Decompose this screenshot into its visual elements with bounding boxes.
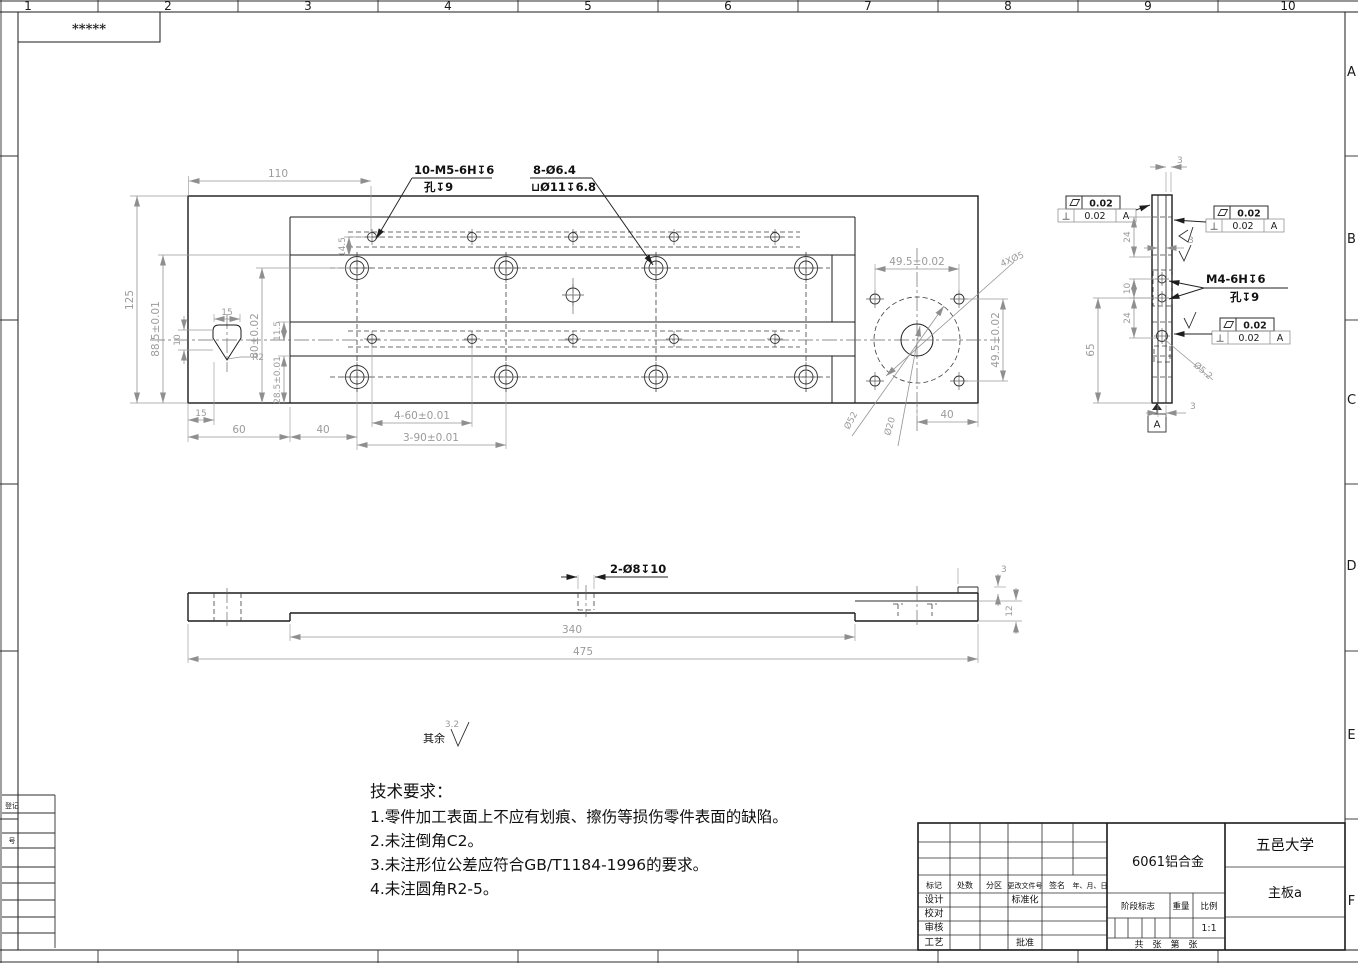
dim-110: 110 (268, 168, 288, 180)
fcf-perp-value: 0.02 (1232, 221, 1253, 232)
side-view-dimensions: 3 24 10 24 65 3 3 (1085, 156, 1196, 417)
dowel-callout: 2-Ø8↧10 (561, 562, 668, 589)
dim-65: 65 (1085, 343, 1097, 356)
rev-col-zone: 分区 (986, 881, 1002, 890)
m5-hole-row-bottom (364, 331, 783, 347)
datum-a-label: A (1154, 420, 1161, 431)
perpendicularity-icon: ⊥ (1216, 334, 1225, 345)
datum-a: A (1148, 403, 1166, 432)
cell-standardization: 标准化 (1011, 894, 1038, 906)
fcf-datum-ref: A (1277, 333, 1284, 344)
row-label: D (1346, 559, 1356, 574)
row-label: A (1347, 65, 1356, 80)
scale-label: 比例 (1200, 901, 1217, 912)
organization: 五邑大学 (1256, 837, 1314, 854)
row-process: 工艺 (924, 938, 943, 949)
dim-125: 125 (124, 290, 136, 310)
col-label: 2 (164, 0, 172, 13)
tech-req-item: 2.未注倒角C2。 (370, 832, 483, 850)
grid-row-letters: A B C D E F (1346, 65, 1356, 909)
top-view-dimensions: 110 125 88.5±0.01 80±0.02 11.5 28.5±0.01… (124, 168, 1026, 450)
label-4x5: 4XØ5 (999, 250, 1026, 270)
dim-24a: 24 (1123, 231, 1133, 243)
flatness-icon (1224, 322, 1234, 328)
col-label: 3 (304, 0, 312, 13)
top-view: 110 125 88.5±0.01 80±0.02 11.5 28.5±0.01… (124, 163, 1026, 450)
margin-label: 号 (9, 837, 16, 845)
dim-49-5-v: 49.5±0.02 (990, 312, 1002, 368)
tech-req-item: 3.未注形位公差应符合GB/T1184-1996的要求。 (370, 855, 708, 874)
material-scale-block: 6061铝合金 阶段标志 重量 比例 1:1 共 张 第 张 (1107, 854, 1225, 951)
finish-prefix: 其余 (423, 731, 445, 745)
dim-15-pentagon: 15 (221, 308, 232, 318)
part-name: 主板a (1268, 886, 1302, 901)
col-label: 7 (864, 0, 872, 13)
dim-3-step: 3 (1001, 565, 1007, 575)
dim-3-top: 3 (1177, 156, 1183, 166)
dim-80: 80±0.02 (249, 313, 261, 359)
weight-label: 重量 (1172, 901, 1190, 912)
col-label: 4 (444, 0, 452, 13)
dim-49-5-h: 49.5±0.02 (889, 256, 945, 268)
roughness-icon (1184, 312, 1196, 328)
dim-10: 10 (173, 334, 183, 346)
flatness-icon (1218, 210, 1228, 216)
fcf-top-right: 0.02 ⊥ 0.02 A (1174, 206, 1284, 233)
stage-mark-label: 阶段标志 (1121, 901, 1156, 912)
dim-4x60: 4-60±0.01 (394, 410, 450, 422)
left-margin-blocks: 登记 号 (2, 795, 55, 948)
col-label: 1 (24, 0, 32, 13)
row-design: 设计 (924, 894, 944, 906)
bottom-view-dimensions: 340 475 3 12 (188, 565, 1022, 663)
dim-10-side: 10 (1123, 283, 1133, 295)
fcf-perp-value: 0.02 (1084, 211, 1105, 222)
grid-column-numbers: 1 2 3 4 5 6 7 8 9 10 (24, 0, 1295, 13)
rev-col-sign: 签名 (1049, 880, 1065, 890)
callout-m5-sub: 孔↧9 (424, 180, 453, 194)
org-part-block: 五邑大学 主板a (1225, 837, 1345, 917)
fcf-top-left: 0.02 ⊥ 0.02 A (1058, 196, 1150, 223)
dim-88-5: 88.5±0.01 (150, 301, 162, 357)
technical-requirements: 技术要求： 1.零件加工表面上不应有划痕、擦伤等损伤零件表面的缺陷。 2.未注倒… (370, 782, 788, 898)
finish-ra-value: 3.2 (445, 720, 459, 730)
rev-col-docno: 更改文件号 (1008, 881, 1043, 890)
perpendicularity-icon: ⊥ (1210, 222, 1219, 233)
col-label: 6 (724, 0, 732, 13)
callout-m4: M4-6H↧6 (1206, 272, 1265, 286)
bottom-view: 2-Ø8↧10 340 475 3 12 (188, 562, 1022, 663)
stars-box: ***** (18, 12, 160, 42)
dim-24b: 24 (1123, 312, 1133, 324)
rev-col-mark: 标记 (926, 880, 942, 890)
callout-m5: 10-M5-6H↧6 (414, 163, 494, 177)
callout-cbore: 8-Ø6.4 (533, 163, 576, 177)
col-label: 8 (1004, 0, 1012, 13)
surface-finish-note: 其余 3.2 (423, 720, 469, 746)
row-label: E (1347, 728, 1355, 743)
fcf-flatness-value: 0.02 (1089, 199, 1112, 210)
callout-cbore-sub: ⊔Ø11↧6.8 (531, 180, 596, 194)
margin-label: 登记 (5, 801, 19, 810)
row-label: B (1347, 232, 1356, 247)
fcf-datum-ref: A (1123, 211, 1130, 222)
sheet-count: 共 张 第 张 (1134, 939, 1197, 951)
fcf-perp-value: 0.02 (1238, 333, 1259, 344)
label-r2: R2 (252, 353, 264, 363)
callout-m4-sub: 孔↧9 (1230, 290, 1259, 304)
scale-value: 1:1 (1201, 923, 1216, 934)
row-audit: 审核 (924, 922, 944, 934)
dim-475: 475 (573, 646, 593, 658)
tech-req-item: 1.零件加工表面上不应有划痕、擦伤等损伤零件表面的缺陷。 (370, 807, 788, 826)
material: 6061铝合金 (1132, 854, 1204, 870)
dim-11-5: 11.5 (273, 321, 283, 341)
dim-12: 12 (1005, 605, 1015, 616)
dim-340: 340 (562, 624, 582, 636)
fcf-flatness-value: 0.02 (1243, 321, 1266, 332)
rev-col-count: 处数 (957, 880, 973, 890)
row-label: C (1347, 393, 1356, 408)
dim-14-5: 14.5 (338, 237, 348, 257)
label-dia20: Ø20 (882, 416, 898, 437)
dowel-hole-center (562, 284, 584, 306)
m4-holes (1155, 272, 1169, 305)
drawing-sheet: 1 2 3 4 5 6 7 8 9 10 A B C D E F ***** 登… (0, 0, 1358, 963)
row-label: F (1348, 894, 1355, 909)
dim-3-bottom: 3 (1190, 402, 1196, 412)
tech-req-item: 4.未注圆角R2-5。 (370, 880, 498, 898)
dim-3-mid: 3 (1188, 236, 1194, 246)
fcf-datum-ref: A (1271, 221, 1278, 232)
perpendicularity-icon: ⊥ (1062, 212, 1071, 223)
col-label: 5 (584, 0, 592, 13)
flatness-icon (1070, 200, 1080, 206)
col-label: 9 (1144, 0, 1152, 13)
stars-text: ***** (72, 22, 106, 37)
top-view-callouts: 10-M5-6H↧6 孔↧9 8-Ø6.4 ⊔Ø11↧6.8 (376, 163, 653, 265)
dim-28-5: 28.5±0.01 (273, 356, 283, 404)
roughness-icon (1179, 245, 1191, 261)
dim-40: 40 (316, 424, 329, 436)
dim-40-right: 40 (940, 409, 953, 421)
tech-req-title: 技术要求： (370, 782, 453, 801)
title-block: 标记 处数 分区 更改文件号 签名 年、月、日 设计 校对 审核 工艺 标准化 … (918, 823, 1345, 951)
m4-callout: M4-6H↧6 孔↧9 (1169, 272, 1288, 304)
callout-2xd8: 2-Ø8↧10 (610, 562, 666, 576)
revision-table: 标记 处数 分区 更改文件号 签名 年、月、日 设计 校对 审核 工艺 标准化 … (918, 823, 1108, 950)
rev-col-date: 年、月、日 (1073, 881, 1108, 890)
col-label: 10 (1280, 0, 1295, 13)
dim-3x90: 3-90±0.01 (403, 432, 459, 444)
row-check: 校对 (924, 908, 944, 920)
dim-60: 60 (232, 424, 245, 436)
side-view: A 0.02 ⊥ 0.02 A 0.02 ⊥ 0.02 A 0.02 ⊥ 0.0… (1058, 156, 1290, 432)
fcf-flatness-value: 0.02 (1237, 209, 1260, 220)
dim-15: 15 (195, 409, 206, 419)
cell-approve: 批准 (1016, 937, 1034, 949)
cad-drawing: 1 2 3 4 5 6 7 8 9 10 A B C D E F ***** 登… (0, 0, 1358, 963)
